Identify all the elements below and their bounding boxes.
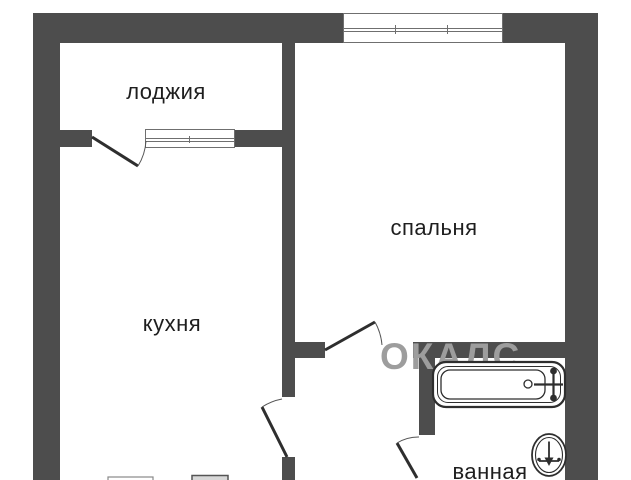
- corridor-label: коридор: [316, 472, 403, 480]
- washbasin-icon: [532, 434, 566, 476]
- bedroom-label: спальня: [390, 215, 477, 241]
- floor-plan-canvas: ОКАЛС: [0, 0, 631, 480]
- loggia-label: лоджия: [126, 79, 206, 105]
- bathtub-icon: [433, 362, 565, 407]
- stove-icon: [192, 476, 228, 480]
- kitchen-door: [262, 399, 287, 457]
- bathroom-label: ванная: [452, 459, 527, 480]
- fixtures-layer: [0, 0, 631, 480]
- bedroom-door: [325, 322, 382, 350]
- kitchen-label: кухня: [143, 311, 201, 337]
- loggia-door: [92, 137, 146, 166]
